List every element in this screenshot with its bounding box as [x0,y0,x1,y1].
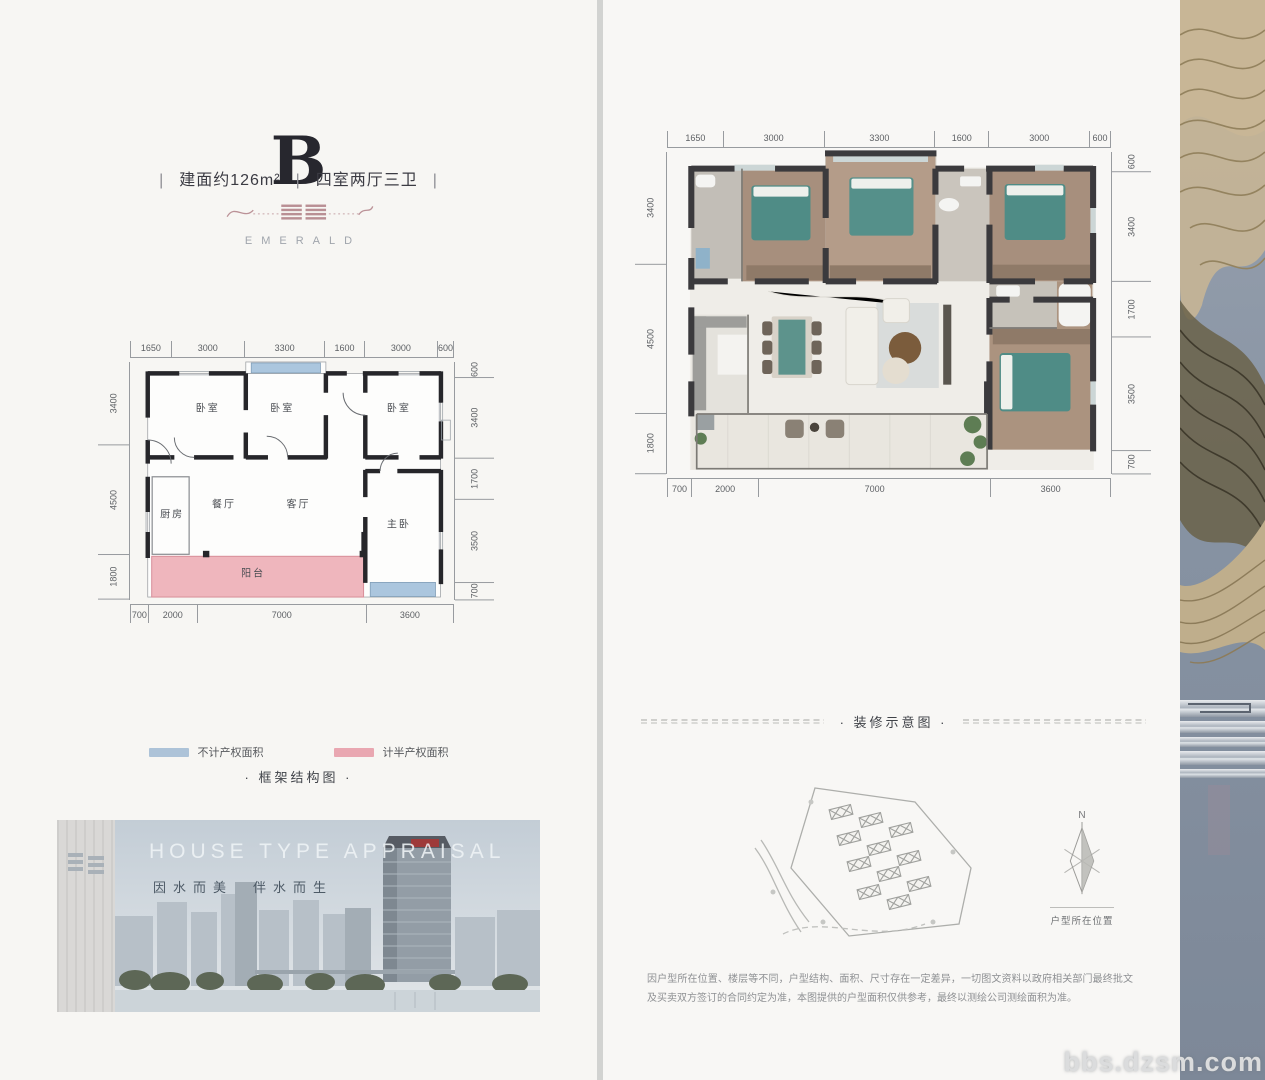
room-label: 主卧 [387,515,411,530]
decor-caption: · 装修示意图 · [840,712,948,731]
room-label: 客厅 [286,496,310,511]
photo-heading: HOUSE TYPE APPRAISAL [149,840,505,864]
legend-label: 不计产权面积 [198,744,264,760]
spec-row: |建面约126m²|四室两厅三卫| [0,166,597,190]
floorplan-linework [130,358,454,604]
legend-swatch [149,748,189,757]
siteplan-sketch [753,772,1023,967]
room-label: 阳台 [241,565,265,580]
dim-value: 1800 [98,555,129,600]
plan-render-area [667,148,1111,478]
brand-block: EMERALD [0,198,597,247]
plan-dims-top: 16503000330016003000600 [667,128,1111,148]
room-label: 卧室 [270,400,294,415]
dim-value: 3400 [98,362,129,445]
dim-value: 3300 [244,341,324,357]
dim-value: 700 [1112,451,1151,474]
dim-value: 3000 [988,131,1089,147]
dim-value: 4500 [635,265,666,414]
dim-value: 700 [455,583,494,600]
dim-value: 1650 [130,341,171,357]
dim-value: 3400 [455,378,494,459]
room-label: 餐厅 [212,496,236,511]
legend-item: 计半产权面积 [334,744,449,760]
dim-value: 1600 [324,341,364,357]
site-watermark: bbs.dzsm.com [1063,1047,1263,1078]
dim-value: 600 [455,362,494,378]
plan-dims-right: 600340017003500700 [1111,152,1151,474]
decorated-floorplan: 16503000330016003000600 340045001800 [635,128,1151,502]
dim-value: 2000 [691,479,758,497]
dim-value: 700 [667,479,691,497]
plan-dims-left: 340045001800 [98,362,130,600]
dim-value: 600 [1112,152,1151,172]
dim-value: 3000 [171,341,244,357]
legend-swatch [334,748,374,757]
dim-value: 3500 [455,500,494,583]
spec-divider: | [159,172,164,189]
structure-caption: · 框架结构图 · [0,767,597,786]
floorplan-render [667,148,1111,478]
compass: N 户型所在位置 [1043,810,1121,929]
north-label: N [1043,810,1121,821]
dim-value: 1650 [667,131,723,147]
brand-script-icon [214,198,384,226]
disclaimer-text: 因户型所在位置、楼层等不同，户型结构、面积、尺寸存在一定差异，一切图文资料以政府… [647,970,1133,1008]
dim-value: 3400 [635,152,666,265]
dim-value: 600 [437,341,454,357]
dim-value: 1600 [934,131,988,147]
wave-ornament [963,719,1146,724]
photo-side-panel [57,820,115,1012]
dim-value: 7000 [197,605,366,623]
room-label: 卧室 [387,400,411,415]
brand-mark-icon [68,852,104,876]
dim-value: 3500 [1112,338,1151,451]
decor-art-photo [1180,0,1265,1080]
spec-divider: | [433,172,438,189]
brand-name: EMERALD [0,235,597,247]
photo-slogan: 因水而美 伴水而生 [153,877,333,896]
building-photo: HOUSE TYPE APPRAISAL 因水而美 伴水而生 [57,820,540,1012]
wave-ornament [641,719,824,724]
dim-value: 600 [1089,131,1111,147]
plan-dims-right: 600340017003500700 [454,362,494,600]
compass-icon [1052,822,1112,900]
decor-caption-row: · 装修示意图 · [641,712,1146,731]
dim-value: 3600 [366,605,454,623]
structure-floorplan: 16503000330016003000600 340045001800 [98,338,494,628]
plan-drawing-area: 卧室卧室卧室厨房餐厅客厅主卧阳台 [130,358,454,604]
dim-value: 1700 [1112,282,1151,337]
area-spec: 建面约126m² [179,172,280,189]
plan-legend: 不计产权面积 计半产权面积 [0,744,597,760]
dim-value: 3000 [364,341,437,357]
spec-divider: | [296,172,301,189]
plan-dims-bottom: 700200070003600 [667,478,1111,502]
dim-value: 3300 [824,131,935,147]
legend-item: 不计产权面积 [149,744,264,760]
dim-value: 700 [130,605,148,623]
left-page: B |建面约126m²|四室两厅三卫| EMERALD [0,0,597,1080]
plan-dims-left: 340045001800 [635,152,667,474]
dim-value: 7000 [758,479,990,497]
dim-value: 4500 [98,445,129,555]
legend-label: 计半产权面积 [383,744,449,760]
unit-location-label: 户型所在位置 [1050,907,1113,927]
layout-spec: 四室两厅三卫 [316,172,418,189]
siteplan-block: N 户型所在位置 [753,772,1123,967]
right-page: 16503000330016003000600 340045001800 [603,0,1180,1080]
dim-value: 3600 [990,479,1111,497]
room-label: 卧室 [196,400,220,415]
dim-value: 1800 [635,414,666,474]
dim-value: 3000 [723,131,824,147]
contour-art [1180,0,1265,1080]
room-label: 厨房 [160,505,184,520]
brochure-scan: B |建面约126m²|四室两厅三卫| EMERALD [0,0,1265,1080]
dim-value: 1700 [455,459,494,500]
dim-value: 2000 [148,605,197,623]
dim-value: 3400 [1112,172,1151,282]
plan-dims-top: 16503000330016003000600 [130,338,454,358]
plan-dims-bottom: 700200070003600 [130,604,454,628]
